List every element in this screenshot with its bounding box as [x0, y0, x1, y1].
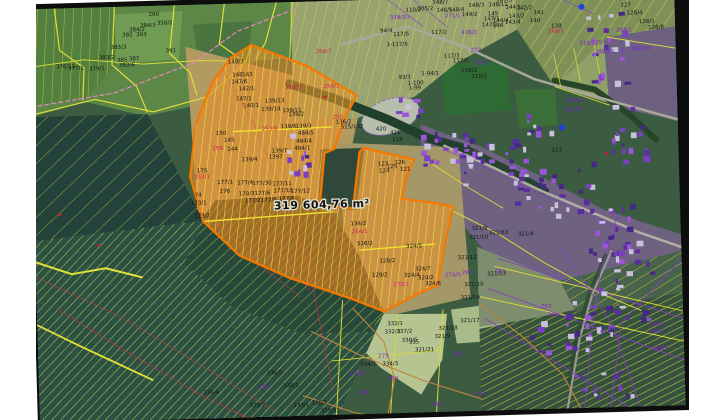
- building: [592, 162, 597, 168]
- parcel-number-label: 278/1: [393, 282, 409, 288]
- parcel-number-label: 266/1: [650, 329, 666, 335]
- parcel-number-label: 177/6: [255, 191, 272, 197]
- building: [287, 157, 292, 163]
- building: [489, 159, 495, 163]
- parcel-number-label: 515/132: [341, 124, 364, 131]
- building: [615, 252, 618, 256]
- building: [538, 350, 543, 353]
- parcel-number-label: 139/3: [296, 123, 313, 129]
- building: [618, 385, 622, 391]
- building: [510, 159, 514, 164]
- building: [423, 164, 427, 167]
- parcel-number-label: 74: [195, 193, 203, 199]
- parcel-number-label: 334/1: [360, 362, 376, 368]
- building: [614, 269, 621, 272]
- building: [643, 155, 650, 162]
- parcel-number-label: 176: [219, 189, 230, 195]
- parcel-number-label: 334/3: [382, 361, 399, 367]
- parcel-number-label: 147/3: [496, 0, 513, 4]
- building: [589, 248, 593, 253]
- building: [594, 393, 598, 396]
- parcel-number-label: 254/1: [324, 84, 340, 90]
- building: [537, 127, 542, 132]
- parcel-number-label: 321/4: [518, 231, 535, 237]
- building: [481, 159, 485, 165]
- parcel-number-label: 516/129: [579, 40, 603, 47]
- building: [610, 329, 614, 332]
- parcel-number-label: 263: [495, 269, 506, 275]
- building: [626, 393, 629, 399]
- building: [399, 97, 403, 102]
- parcel-number-label: 134/2: [350, 221, 366, 227]
- building: [615, 81, 621, 87]
- building: [405, 104, 411, 110]
- parcel-number-label: 321/10: [469, 235, 489, 242]
- building: [552, 174, 557, 178]
- parcel-number-label: 129/2: [372, 272, 388, 278]
- parcel-number-label: 345: [431, 402, 442, 408]
- building: [548, 343, 552, 346]
- parcel-number-label: 338/1: [283, 383, 299, 389]
- parcel-number-label: 117/2: [431, 30, 447, 36]
- building: [438, 137, 442, 142]
- parcel-number-label: 1397: [269, 154, 284, 160]
- building: [627, 227, 634, 232]
- parcel-number-label: 136/1: [311, 400, 327, 406]
- parcel-number-label: 205/2: [417, 6, 433, 12]
- building: [526, 196, 530, 200]
- building: [630, 204, 636, 210]
- building: [627, 244, 631, 249]
- building: [555, 202, 559, 208]
- parcel-number-label: 391: [165, 48, 176, 54]
- parcel-number-label: 516/2: [357, 241, 373, 247]
- parcel-number-label: 126/8: [648, 25, 665, 31]
- building: [294, 171, 300, 176]
- building: [489, 144, 495, 151]
- parcel-number-label: 139/13: [265, 98, 285, 105]
- building: [631, 107, 635, 112]
- building: [584, 199, 590, 205]
- parcel-number-label: 393: [136, 32, 147, 38]
- building: [573, 346, 577, 351]
- parcel-number-label: 341: [358, 390, 369, 396]
- parcel-number-label: 177/11: [272, 181, 292, 188]
- parcel-number-label: 254/7: [316, 49, 333, 55]
- building: [605, 241, 610, 244]
- building: [452, 133, 456, 138]
- building: [435, 132, 438, 138]
- building: [606, 306, 613, 312]
- building: [551, 178, 556, 183]
- building: [508, 172, 514, 176]
- building: [619, 128, 625, 132]
- building: [599, 221, 605, 224]
- building: [303, 165, 307, 171]
- building: [435, 139, 438, 143]
- parcel-number-label: 321/8: [472, 226, 489, 232]
- building: [614, 374, 620, 379]
- building: [620, 306, 626, 309]
- building: [520, 169, 527, 173]
- building: [612, 149, 615, 154]
- building: [436, 160, 440, 164]
- building: [627, 315, 630, 320]
- building: [530, 335, 535, 340]
- parcel-number-label: 128/2: [379, 258, 395, 264]
- parcel-number-label: 484/1: [294, 145, 310, 151]
- parcel-number-label: 221: [259, 385, 270, 391]
- building: [625, 40, 630, 46]
- parcel-number-label: 121: [400, 167, 411, 173]
- building: [450, 159, 456, 164]
- building: [586, 184, 591, 188]
- building: [644, 150, 649, 156]
- parcel-number-label: 337/7: [249, 403, 266, 409]
- building: [414, 99, 421, 103]
- building: [586, 337, 593, 341]
- parcel-number-label: 264/5: [652, 346, 669, 352]
- parcel-number-label: 321/9: [435, 334, 452, 340]
- map-canvas[interactable]: 260358/2384/3384/2392393383/3391383/2385…: [36, 0, 686, 420]
- building: [287, 150, 291, 154]
- building: [635, 260, 642, 265]
- building: [568, 334, 575, 340]
- building: [604, 28, 609, 33]
- building: [641, 125, 645, 130]
- building: [523, 159, 529, 164]
- parcel-number-label: 133/1: [293, 403, 309, 409]
- parcel-number-label: 420: [376, 126, 387, 132]
- building: [622, 143, 625, 146]
- parcel-number-label: 117/1: [453, 58, 469, 64]
- forest-patch: [515, 89, 558, 128]
- building: [465, 137, 469, 141]
- building: [566, 346, 573, 350]
- building: [610, 332, 613, 337]
- parcel-number-label: 116/1: [471, 74, 487, 80]
- parcel-number-label: 81/36: [565, 107, 582, 113]
- building: [523, 188, 530, 192]
- building: [463, 183, 468, 186]
- parcel-number-label: 246: [452, 351, 463, 357]
- parcel-number-label: 147/6: [231, 79, 248, 85]
- parcel-number-label: 1-99: [409, 85, 422, 91]
- building: [598, 258, 602, 262]
- building: [510, 146, 516, 150]
- building: [586, 348, 590, 352]
- building: [622, 48, 625, 52]
- parcel-number-label: 94/4: [380, 28, 393, 34]
- building: [620, 57, 625, 61]
- parcel-number-label: 271/1: [445, 13, 461, 19]
- building: [519, 173, 524, 177]
- building: [454, 147, 459, 153]
- building: [598, 15, 601, 19]
- building: [627, 216, 630, 222]
- parcel-number-label: 177/1: [217, 180, 233, 186]
- building: [559, 184, 564, 189]
- building: [623, 160, 629, 165]
- building: [416, 115, 420, 119]
- building: [635, 250, 640, 254]
- parcel-number-label: 383/2: [99, 55, 115, 61]
- building: [619, 371, 623, 374]
- building: [538, 205, 541, 208]
- building: [638, 132, 643, 137]
- building: [593, 389, 596, 394]
- parcel-number-label: 140/1: [243, 103, 259, 109]
- parcel-number-label: 265: [462, 270, 473, 276]
- building: [627, 271, 634, 276]
- building: [527, 132, 531, 135]
- building: [541, 321, 548, 327]
- building: [527, 120, 530, 123]
- building: [631, 132, 637, 138]
- building: [609, 14, 614, 18]
- building: [505, 152, 508, 155]
- building: [601, 291, 607, 296]
- parcel-number-label: 2792: [474, 60, 488, 66]
- building: [577, 209, 584, 214]
- building: [586, 17, 591, 21]
- building: [590, 312, 597, 316]
- parcel-number-label: 392: [122, 32, 133, 38]
- building: [537, 183, 543, 186]
- building: [616, 256, 619, 262]
- parcel-number-label: 253/1: [194, 174, 210, 180]
- building: [514, 181, 518, 186]
- parcel-number-label: 142/2: [516, 5, 532, 11]
- building: [587, 28, 593, 32]
- parcel-number-label: 276/2: [350, 371, 366, 377]
- building: [631, 394, 635, 399]
- building: [574, 375, 577, 379]
- parcel-number-label: 337/2: [396, 329, 412, 335]
- building: [613, 142, 616, 145]
- area-measurement-label: 319 604,76 m²: [274, 197, 370, 213]
- parcel-number-label: 142/1: [239, 86, 255, 92]
- parcel-number-label: 379/1: [89, 66, 105, 72]
- building: [590, 209, 595, 214]
- building: [464, 172, 467, 175]
- parcel-number-label: 117/5: [393, 32, 410, 38]
- building: [515, 201, 521, 206]
- building: [536, 131, 542, 138]
- building: [575, 331, 580, 336]
- parcel-number-label: 358/2: [157, 20, 173, 26]
- building: [586, 324, 590, 330]
- building: [573, 301, 578, 305]
- building: [624, 82, 631, 85]
- parcel-number-label: 321/16: [461, 295, 481, 302]
- parcel-number-label: 260: [148, 12, 159, 18]
- building: [533, 125, 536, 129]
- building: [641, 317, 646, 323]
- parcel-number-label: 268/1: [548, 28, 564, 34]
- parcel-number-label: 253/5: [286, 85, 303, 91]
- building: [559, 194, 565, 198]
- parcel-number-label: 389/18: [631, 46, 651, 53]
- building: [601, 325, 604, 329]
- building: [566, 314, 573, 320]
- parcel-number-label: 339/51: [321, 408, 341, 415]
- building: [616, 279, 619, 284]
- building: [424, 144, 431, 150]
- building: [581, 389, 588, 392]
- building: [566, 323, 569, 327]
- building: [543, 184, 547, 190]
- parcel-number-label: 754: [548, 313, 559, 319]
- parcel-number-label: 173/2: [194, 213, 210, 219]
- building: [637, 241, 644, 247]
- building: [609, 208, 613, 211]
- parcel-number-label: 484/5: [298, 130, 315, 136]
- parcel-number-label: 126/4: [627, 10, 644, 16]
- building: [424, 155, 430, 161]
- parcel-number-label: 438/2: [461, 30, 477, 36]
- building: [301, 156, 304, 161]
- parcel-number-label: 321/17: [460, 318, 480, 325]
- building: [619, 251, 625, 256]
- parcel-number-label: 259: [212, 146, 223, 152]
- building: [402, 113, 409, 118]
- building: [460, 155, 466, 158]
- building: [608, 38, 611, 42]
- building: [619, 12, 625, 16]
- parcel-number-label: 113: [551, 147, 562, 153]
- parcel-number-label: 377/1: [68, 66, 84, 72]
- parcel-number-label: 127: [620, 2, 631, 8]
- parcel-number-label: 126: [395, 160, 406, 166]
- page: 260358/2384/3384/2392393383/3391383/2385…: [0, 0, 720, 420]
- building: [303, 172, 308, 178]
- parcel-number-label: 335: [409, 339, 420, 345]
- parcel-number-label: 264/1: [352, 229, 368, 235]
- building: [396, 111, 403, 114]
- parcel-number-label: 141: [534, 10, 545, 16]
- building: [524, 174, 529, 177]
- parcel-number-label: 266/2: [649, 322, 665, 328]
- parcel-number-label: 250: [388, 376, 399, 382]
- building: [601, 330, 604, 334]
- parcel-number-label: 177/2: [245, 198, 261, 204]
- parcel-number-label: 177/30: [252, 181, 272, 188]
- building: [590, 305, 596, 308]
- building: [579, 189, 584, 193]
- parcel-number-label: 143/4: [505, 20, 522, 26]
- aerial-imagery: 260358/2384/3384/2392393383/3391383/2385…: [36, 0, 689, 420]
- building: [421, 135, 427, 141]
- parcel-number-label: 321/12: [457, 255, 477, 262]
- building: [616, 132, 619, 136]
- building: [623, 245, 626, 249]
- building: [622, 148, 626, 153]
- building: [601, 372, 606, 375]
- building: [518, 188, 524, 191]
- building: [622, 207, 625, 213]
- building: [613, 105, 620, 110]
- parcel-number-label: 375: [475, 392, 486, 398]
- parcel-number-label: 321/63: [489, 230, 509, 237]
- parcel-number-label: 148/3: [468, 3, 485, 9]
- parcel-number-label: 148/7: [432, 0, 449, 6]
- building: [527, 114, 532, 120]
- parcel-number-label: 279: [378, 353, 389, 359]
- building: [556, 214, 562, 219]
- building: [608, 236, 614, 240]
- building: [601, 73, 605, 79]
- parcel-number-label: 170/3: [239, 191, 256, 197]
- parcel-number-label: 144: [227, 146, 238, 152]
- parcel-number-label: 119: [392, 137, 403, 143]
- building: [617, 285, 624, 288]
- parcel-number-label: 253/8: [262, 126, 279, 132]
- parcel-number-label: 336/5: [267, 370, 284, 376]
- building: [546, 350, 552, 355]
- building: [647, 318, 651, 321]
- building: [595, 230, 600, 236]
- parcel-number-label: 753: [541, 304, 552, 310]
- building: [629, 148, 634, 154]
- parcel-number-label: 324/5: [406, 243, 423, 249]
- parcel-number-label: 321/21: [415, 347, 435, 354]
- parcel-number-label: 1-94/1: [421, 71, 439, 77]
- building: [566, 207, 569, 212]
- parcel-number-label: 388/19: [595, 49, 615, 56]
- parcel-number-label: 139/4: [242, 157, 259, 163]
- building: [550, 207, 553, 211]
- parcel-number-label: 149/3: [228, 59, 245, 65]
- parcel-number-label: 484/4: [296, 138, 313, 144]
- building: [443, 148, 448, 151]
- parcel-number-label: 177/12: [290, 189, 310, 196]
- building: [519, 178, 525, 182]
- parcel-number-label: 321/15: [464, 282, 484, 289]
- building: [540, 169, 547, 175]
- parcel-number-label: 147/1: [236, 96, 252, 102]
- building: [464, 143, 468, 147]
- map-viewport[interactable]: 260358/2384/3384/2392393383/3391383/2385…: [36, 0, 689, 420]
- building: [580, 374, 583, 380]
- parcel-number-label: 150: [216, 131, 227, 137]
- parcel-number-label: 80/37: [567, 98, 584, 104]
- building: [418, 109, 424, 113]
- building: [467, 158, 471, 161]
- parcel-number-label: 143: [242, 72, 253, 78]
- parcel-number-label: 339/20: [390, 15, 410, 22]
- parcel-number-label: 272: [471, 48, 482, 54]
- parcel-number-label: 139/2: [288, 112, 304, 118]
- building: [515, 143, 522, 147]
- building: [549, 131, 554, 137]
- building: [650, 271, 655, 275]
- parcel-number-label: 383/3: [110, 45, 127, 51]
- parcel-number-label: 383/6: [119, 62, 136, 68]
- parcel-number-label: 175: [197, 168, 208, 174]
- building: [523, 147, 526, 153]
- building: [509, 166, 516, 169]
- building: [464, 149, 469, 152]
- parcel-number-label: 140: [530, 18, 541, 24]
- building: [566, 342, 571, 346]
- parcel-number-label: 145: [224, 138, 235, 144]
- building: [456, 159, 460, 163]
- building: [289, 171, 293, 175]
- building: [421, 151, 427, 156]
- parcel-number-label: 274/5: [445, 272, 462, 278]
- building: [592, 80, 599, 83]
